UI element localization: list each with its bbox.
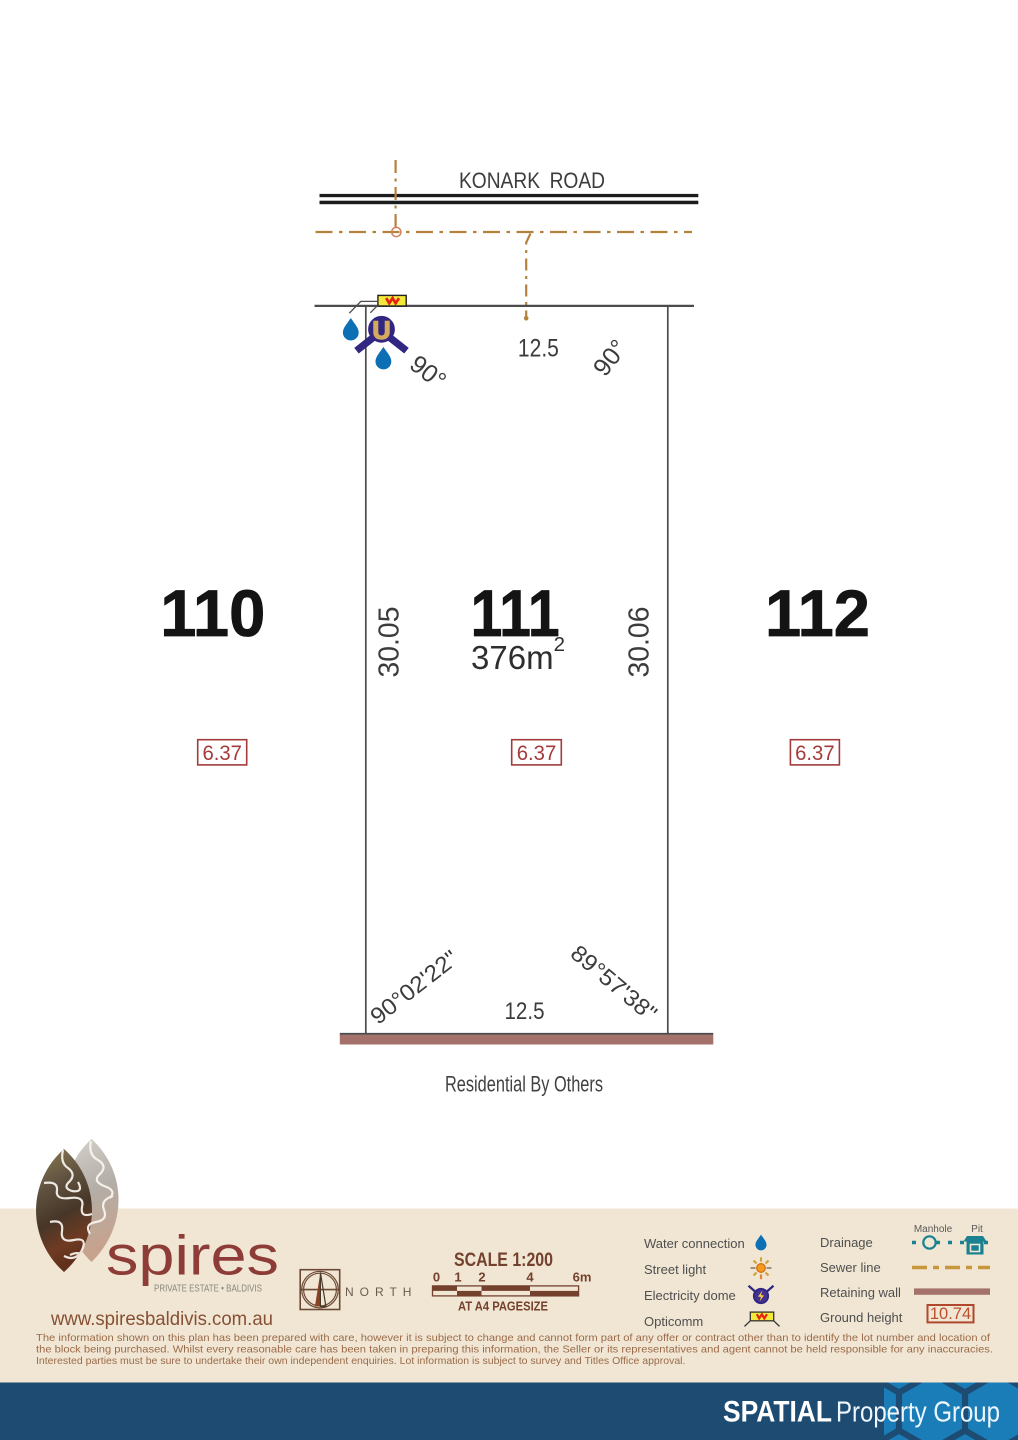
svg-text:376m2: 376m2 xyxy=(471,633,565,676)
svg-text:AT A4 PAGESIZE: AT A4 PAGESIZE xyxy=(458,1300,548,1314)
svg-text:30.05: 30.05 xyxy=(374,607,406,678)
svg-text:U: U xyxy=(372,317,390,345)
svg-text:Street light: Street light xyxy=(644,1262,707,1277)
svg-text:Residential By Others: Residential By Others xyxy=(445,1072,603,1097)
svg-text:Manhole: Manhole xyxy=(914,1224,953,1235)
svg-text:NORTH: NORTH xyxy=(345,1285,417,1299)
svg-text:www.spiresbaldivis.com.au: www.spiresbaldivis.com.au xyxy=(50,1308,273,1330)
svg-text:Interested parties must be sur: Interested parties must be sure to under… xyxy=(36,1355,685,1367)
svg-text:4: 4 xyxy=(526,1270,534,1285)
svg-text:spires: spires xyxy=(106,1223,279,1286)
svg-text:6.37: 6.37 xyxy=(517,741,557,765)
svg-text:6.37: 6.37 xyxy=(795,741,835,765)
svg-text:30.06: 30.06 xyxy=(624,607,656,678)
svg-text:Property Group: Property Group xyxy=(836,1397,1000,1429)
svg-text:Water connection: Water connection xyxy=(644,1236,745,1251)
svg-text:6.37: 6.37 xyxy=(202,741,242,765)
svg-text:The information shown on this: The information shown on this plan has b… xyxy=(36,1332,990,1344)
svg-text:SPATIAL: SPATIAL xyxy=(723,1396,832,1429)
svg-text:10.74: 10.74 xyxy=(930,1305,971,1323)
svg-text:the block being purchased. Whi: the block being purchased. Whilst every … xyxy=(36,1344,993,1356)
svg-text:6m: 6m xyxy=(573,1270,592,1285)
svg-text:Pit: Pit xyxy=(971,1224,983,1235)
svg-text:Retaining wall: Retaining wall xyxy=(820,1285,901,1300)
svg-text:Electricity dome: Electricity dome xyxy=(644,1288,736,1303)
svg-text:1: 1 xyxy=(454,1270,461,1285)
svg-text:12.5: 12.5 xyxy=(505,998,545,1025)
svg-text:12.5: 12.5 xyxy=(518,335,559,363)
svg-text:2: 2 xyxy=(478,1270,485,1285)
svg-text:Sewer line: Sewer line xyxy=(820,1260,881,1275)
svg-text:KONARK ROAD: KONARK ROAD xyxy=(459,168,605,193)
svg-text:SCALE 1:200: SCALE 1:200 xyxy=(454,1250,553,1271)
svg-text:110: 110 xyxy=(160,576,265,650)
svg-text:Drainage: Drainage xyxy=(820,1235,873,1250)
svg-text:PRIVATE ESTATE • BALDIVIS: PRIVATE ESTATE • BALDIVIS xyxy=(154,1283,262,1295)
svg-text:Ground height: Ground height xyxy=(820,1310,903,1325)
svg-text:112: 112 xyxy=(765,576,870,650)
svg-text:0: 0 xyxy=(433,1270,440,1285)
svg-text:Opticomm: Opticomm xyxy=(644,1314,703,1329)
